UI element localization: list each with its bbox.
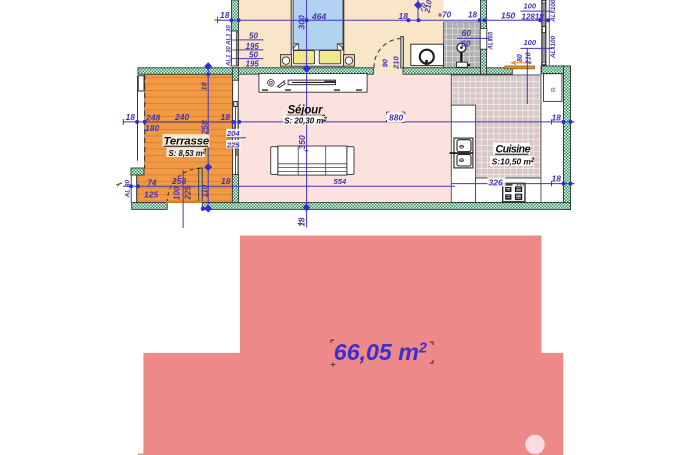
svg-text:AL‖100: AL‖100	[550, 35, 557, 59]
svg-text:18: 18	[221, 176, 231, 186]
svg-text:150: 150	[501, 10, 515, 20]
svg-text:60: 60	[462, 28, 472, 38]
svg-text:204: 204	[226, 129, 240, 138]
svg-text:195: 195	[246, 42, 260, 51]
svg-text:S: 20,30 m2: S: 20,30 m2	[284, 116, 327, 125]
svg-text:300: 300	[297, 15, 307, 29]
svg-text:18: 18	[468, 11, 477, 20]
svg-text:210: 210	[526, 52, 533, 65]
svg-text:110: 110	[201, 184, 210, 197]
svg-text:AL‖100: AL‖100	[550, 0, 557, 23]
svg-text:195: 195	[246, 59, 260, 68]
svg-text:S:10,50 m2: S:10,50 m2	[492, 157, 535, 167]
svg-text:225: 225	[184, 186, 193, 201]
svg-text:18: 18	[298, 217, 307, 226]
svg-text:18: 18	[552, 173, 562, 183]
svg-text:100: 100	[173, 186, 182, 200]
svg-text:240: 240	[174, 112, 189, 122]
svg-text:S: 8,53 m2: S: 8,53 m2	[169, 149, 207, 158]
svg-text:258: 258	[200, 120, 210, 135]
svg-text:880: 880	[389, 112, 403, 122]
svg-text:74: 74	[148, 178, 157, 187]
svg-text:210: 210	[392, 56, 401, 70]
svg-text:464: 464	[311, 12, 326, 22]
svg-text:12818: 12818	[522, 12, 545, 21]
svg-text:60: 60	[461, 39, 471, 49]
svg-text:225: 225	[226, 141, 240, 150]
svg-text:AL 80: AL 80	[125, 180, 132, 199]
svg-text:50: 50	[249, 51, 258, 60]
svg-text:18: 18	[126, 112, 136, 122]
svg-text:Terrasse: Terrasse	[164, 136, 210, 148]
svg-text:180: 180	[145, 123, 159, 133]
svg-text:18: 18	[399, 11, 409, 21]
svg-text:18: 18	[221, 112, 231, 122]
svg-text:R: R	[551, 87, 558, 92]
svg-text:90: 90	[381, 58, 390, 67]
svg-text:+70: +70	[438, 11, 452, 20]
svg-text:50: 50	[249, 31, 258, 40]
svg-text:AL1 30 AL1 30: AL1 30 AL1 30	[227, 25, 233, 67]
svg-text:Séjour: Séjour	[288, 103, 325, 116]
svg-text:248: 248	[145, 113, 160, 123]
svg-text:18: 18	[552, 112, 562, 122]
svg-text:Cuisine: Cuisine	[496, 143, 531, 155]
svg-text:554: 554	[334, 177, 347, 186]
svg-text:100: 100	[524, 2, 537, 11]
svg-text:350: 350	[297, 135, 307, 149]
svg-text:100: 100	[524, 38, 537, 47]
svg-text:18: 18	[220, 10, 230, 20]
svg-text:80: 80	[517, 54, 524, 62]
svg-text:AL‖65: AL‖65	[489, 31, 495, 50]
svg-text:125: 125	[144, 189, 158, 199]
svg-text:66,05 m2: 66,05 m2	[334, 339, 427, 365]
svg-text:258: 258	[171, 176, 186, 186]
svg-text:18: 18	[200, 81, 209, 90]
svg-text:326: 326	[489, 177, 503, 187]
